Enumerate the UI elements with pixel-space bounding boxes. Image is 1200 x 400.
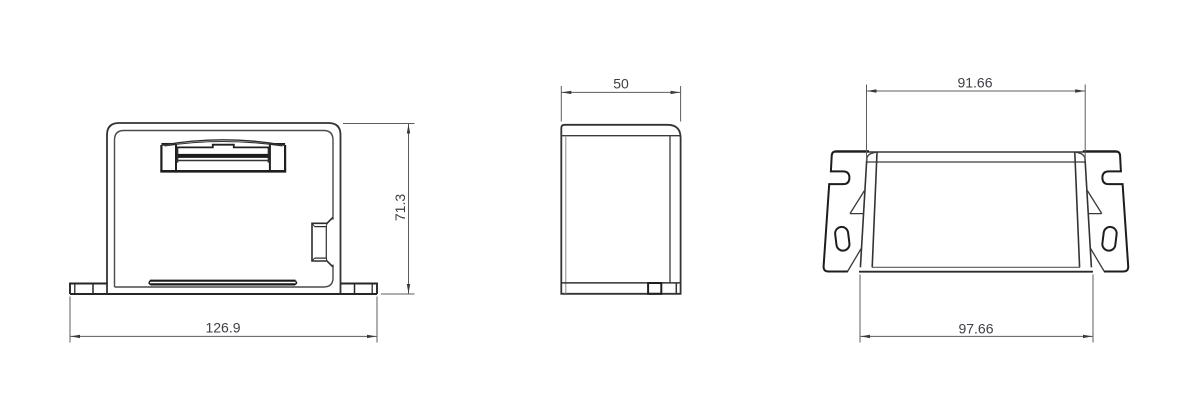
- svg-text:50: 50: [613, 76, 629, 92]
- svg-text:71.3: 71.3: [392, 194, 408, 221]
- svg-text:126.9: 126.9: [205, 319, 240, 335]
- svg-text:91.66: 91.66: [957, 75, 992, 91]
- svg-text:97.66: 97.66: [958, 321, 993, 337]
